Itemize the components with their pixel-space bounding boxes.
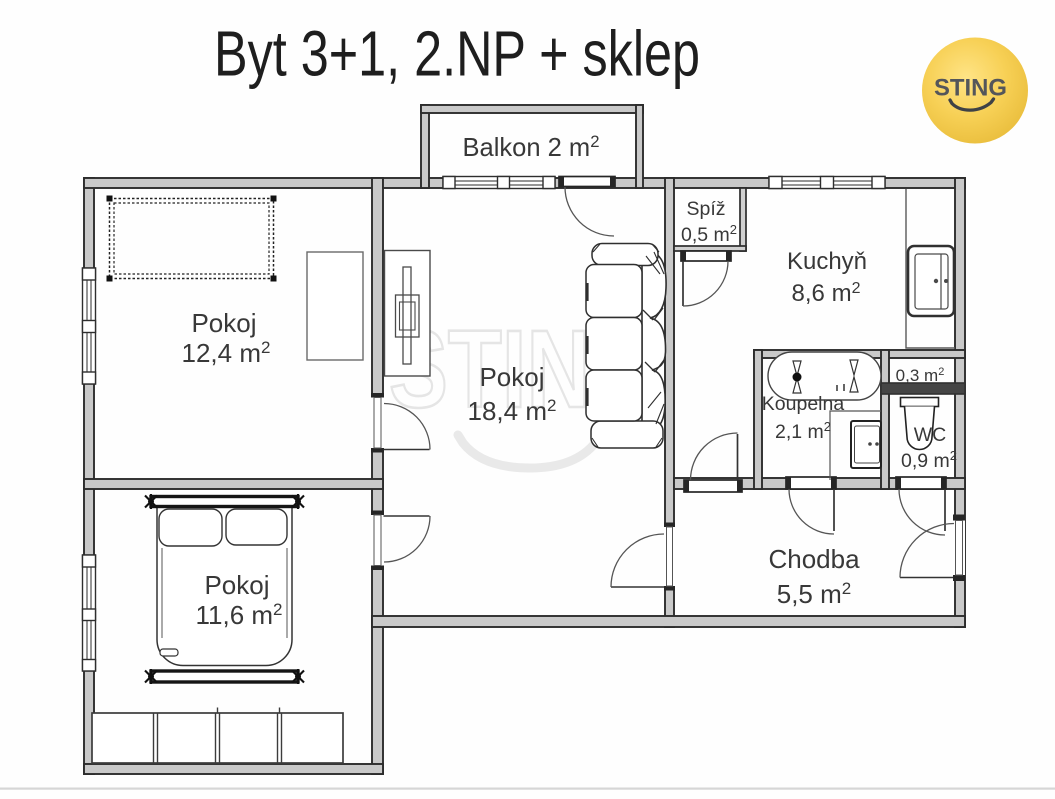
svg-text:Pokoj: Pokoj (191, 308, 256, 338)
svg-text:Byt 3+1, 2.NP + sklep: Byt 3+1, 2.NP + sklep (214, 18, 700, 90)
svg-text:2,1 m2: 2,1 m2 (775, 419, 831, 443)
svg-text:Spíž: Spíž (686, 198, 725, 220)
svg-text:STING: STING (934, 75, 1007, 102)
svg-text:Chodba: Chodba (768, 544, 860, 574)
svg-text:12,4 m2: 12,4 m2 (182, 338, 271, 368)
svg-text:0,3 m2: 0,3 m2 (896, 366, 945, 385)
svg-text:8,6 m2: 8,6 m2 (792, 280, 861, 307)
svg-text:WC: WC (914, 424, 947, 446)
svg-text:18,4 m2: 18,4 m2 (468, 396, 557, 426)
svg-text:5,5 m2: 5,5 m2 (777, 579, 852, 609)
svg-text:0,5 m2: 0,5 m2 (681, 222, 737, 246)
svg-text:11,6 m2: 11,6 m2 (195, 600, 282, 630)
svg-text:Koupelna: Koupelna (762, 393, 845, 415)
svg-text:Pokoj: Pokoj (204, 570, 269, 600)
svg-text:Pokoj: Pokoj (479, 362, 544, 392)
svg-text:Kuchyň: Kuchyň (787, 248, 867, 275)
svg-text:Balkon 2 m2: Balkon 2 m2 (463, 132, 600, 162)
svg-text:0,9 m2: 0,9 m2 (901, 448, 957, 472)
